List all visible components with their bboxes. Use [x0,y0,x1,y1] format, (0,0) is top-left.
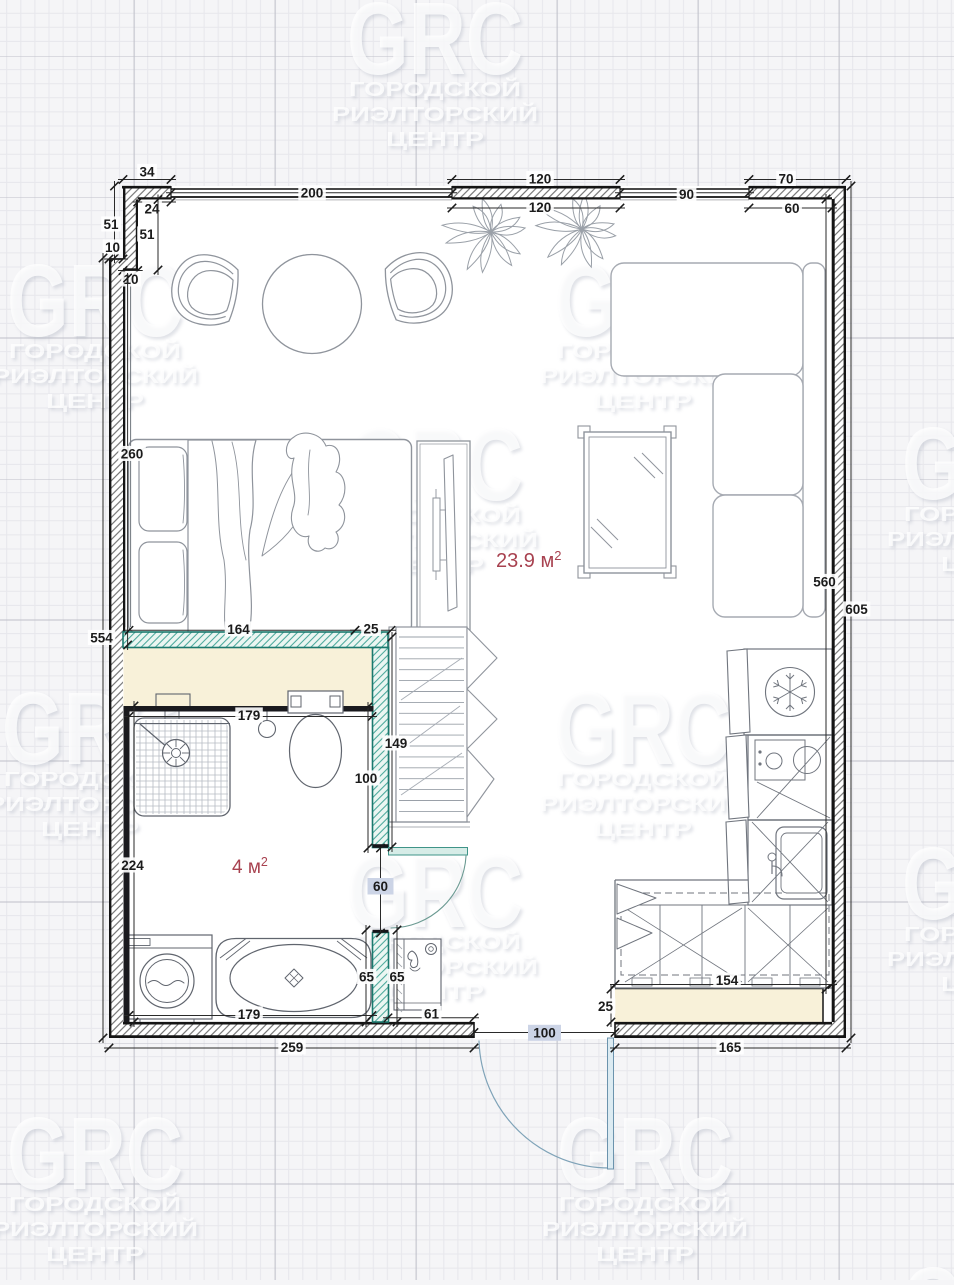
svg-text:100: 100 [533,1026,556,1041]
svg-text:ГОРОДСКОЙ: ГОРОДСКОЙ [904,922,954,946]
svg-text:ГОРОДСКОЙ: ГОРОДСКОЙ [559,1192,731,1216]
svg-text:РИЭЛТОРСКИЙ: РИЭЛТОРСКИЙ [542,1217,748,1241]
svg-text:149: 149 [385,736,408,751]
svg-text:23.9 м2: 23.9 м2 [496,548,561,572]
svg-text:60: 60 [373,879,388,894]
svg-text:РИЭЛТОРСКИЙ: РИЭЛТОРСКИЙ [0,364,198,388]
svg-text:120: 120 [529,200,552,215]
svg-text:РИЭЛТОРСКИЙ: РИЭЛТОРСКИЙ [0,1217,198,1241]
svg-text:34: 34 [139,164,155,179]
svg-text:РИЭЛТОРСКИЙ: РИЭЛТОРСКИЙ [887,527,954,551]
svg-text:60: 60 [784,201,799,216]
svg-text:25: 25 [598,999,614,1014]
svg-text:ЦЕНТР: ЦЕНТР [941,974,954,996]
svg-text:259: 259 [281,1040,304,1055]
svg-text:ЦЕНТР: ЦЕНТР [594,819,692,841]
svg-text:10: 10 [105,240,120,255]
svg-text:164: 164 [227,622,250,637]
svg-text:260: 260 [121,446,144,461]
svg-text:РИЭЛТОРСКИЙ: РИЭЛТОРСКИЙ [540,792,746,816]
svg-text:65: 65 [389,969,405,984]
svg-text:605: 605 [845,602,868,617]
svg-text:ЦЕНТР: ЦЕНТР [386,129,484,151]
svg-text:154: 154 [716,973,739,988]
svg-text:ЦЕНТР: ЦЕНТР [46,391,144,413]
svg-text:70: 70 [778,171,793,186]
svg-text:560: 560 [813,574,836,589]
svg-text:179: 179 [238,708,261,723]
svg-text:ЦЕНТР: ЦЕНТР [596,1244,694,1266]
svg-text:51: 51 [103,217,119,232]
svg-text:90: 90 [679,187,694,202]
svg-text:GRC: GRC [902,1246,954,1280]
svg-text:120: 120 [529,171,552,186]
svg-text:ЦЕНТР: ЦЕНТР [941,554,954,576]
svg-text:65: 65 [359,969,375,984]
svg-text:165: 165 [719,1040,742,1055]
svg-text:179: 179 [238,1007,261,1022]
svg-text:ЦЕНТР: ЦЕНТР [46,1244,144,1266]
svg-text:200: 200 [301,186,324,201]
svg-text:61: 61 [424,1006,440,1021]
svg-text:100: 100 [355,771,378,786]
svg-text:РИЭЛТОРСКИЙ: РИЭЛТОРСКИЙ [332,102,538,126]
svg-text:РИЭЛТОРСКИЙ: РИЭЛТОРСКИЙ [887,947,954,971]
svg-text:ГОРОДСКОЙ: ГОРОДСКОЙ [904,502,954,526]
svg-text:ГОРОДСКОЙ: ГОРОДСКОЙ [557,767,729,791]
svg-text:25: 25 [363,621,379,636]
svg-text:ГОРОДСКОЙ: ГОРОДСКОЙ [9,339,181,363]
svg-text:554: 554 [90,630,113,645]
svg-text:ГОРОДСКОЙ: ГОРОДСКОЙ [9,1192,181,1216]
svg-text:224: 224 [121,858,144,873]
svg-text:51: 51 [139,227,155,242]
svg-text:ЦЕНТР: ЦЕНТР [594,391,692,413]
svg-text:ГОРОДСКОЙ: ГОРОДСКОЙ [349,77,521,101]
